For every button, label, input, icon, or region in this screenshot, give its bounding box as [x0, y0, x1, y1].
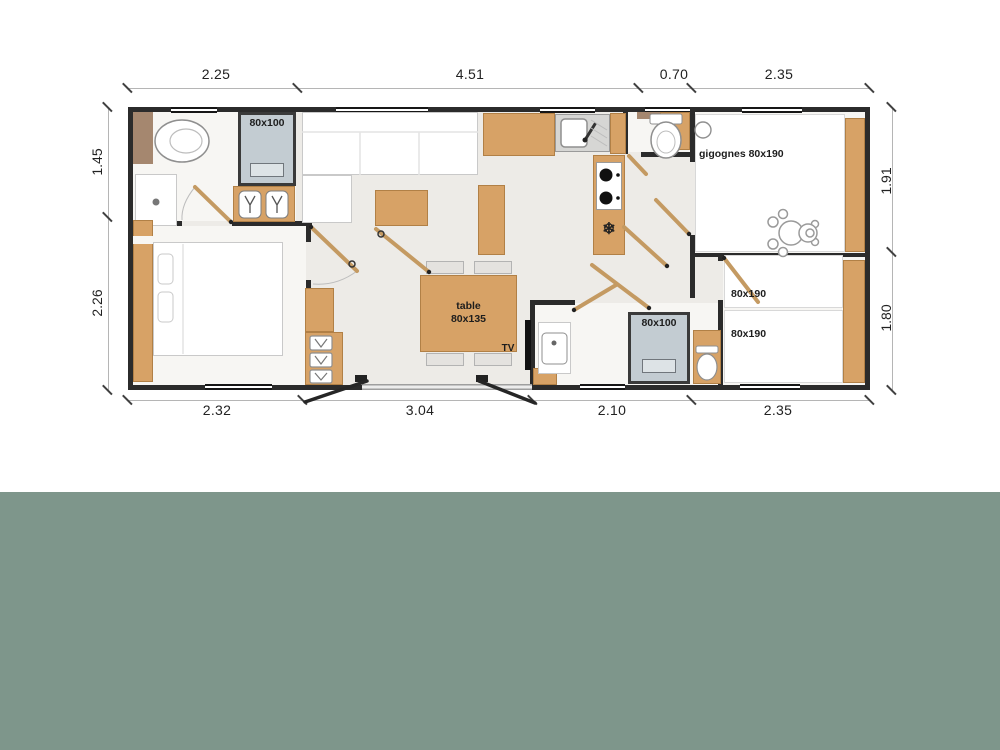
dim-top-4: 2.35 — [765, 66, 793, 82]
dim-bottom-1: 2.32 — [203, 402, 231, 418]
dim-top-2: 4.51 — [456, 66, 484, 82]
table-label: table 80x135 — [420, 300, 517, 325]
dim-right-1: 1.91 — [878, 167, 894, 194]
table-label-line2: 80x135 — [451, 313, 486, 325]
shower2-label: 80x100 — [628, 317, 690, 330]
dim-bottom-4: 2.35 — [764, 402, 792, 418]
twin-bed1-label: 80x190 — [731, 288, 779, 301]
dim-line-left — [108, 107, 109, 390]
dim-top-1: 2.25 — [202, 66, 230, 82]
fridge-icon: ❄ — [593, 220, 625, 239]
dim-line-bottom — [128, 400, 870, 401]
dim-left-1: 1.45 — [89, 148, 105, 175]
dim-line-right — [892, 107, 893, 390]
floor-plan: 80x100 gigognes 80x190 80x190 80x190 80x… — [128, 107, 870, 390]
page: 2.25 4.51 0.70 2.35 2.32 3.04 2.10 2.35 … — [0, 0, 1000, 750]
dim-line-top — [128, 88, 870, 89]
dim-left-2: 2.26 — [89, 289, 105, 316]
twin-bed2-label: 80x190 — [731, 328, 779, 341]
dim-top-3: 0.70 — [660, 66, 688, 82]
shower1-label: 80x100 — [238, 117, 296, 130]
tv-label: TV — [493, 343, 523, 355]
dim-right-2: 1.80 — [878, 304, 894, 331]
table-label-line1: table — [456, 300, 481, 312]
info-panel: Cottage CONFORT Mobil-home bardage bois … — [0, 492, 1000, 750]
dim-bottom-3: 2.10 — [598, 402, 626, 418]
gigognes-bed-label: gigognes 80x190 — [699, 148, 831, 161]
dim-bottom-2: 3.04 — [406, 402, 434, 418]
